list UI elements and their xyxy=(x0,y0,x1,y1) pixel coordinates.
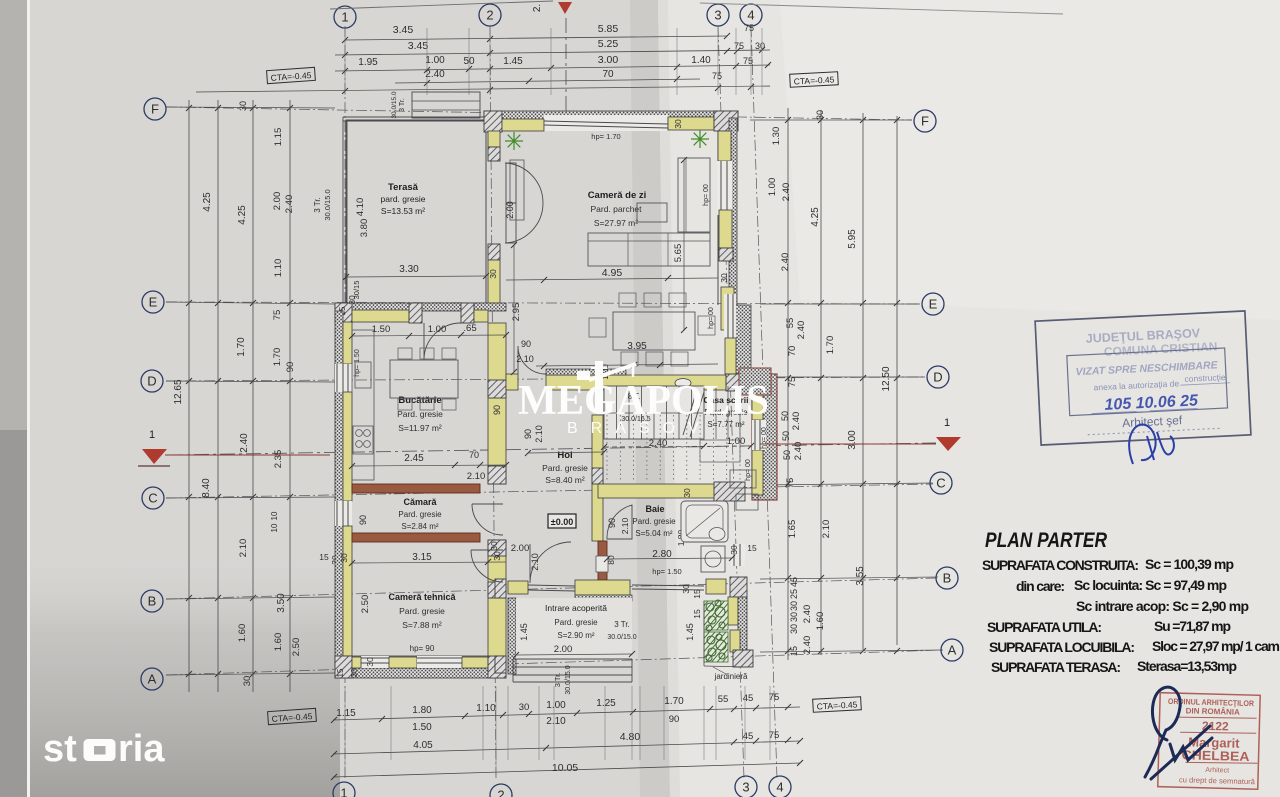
svg-text:1.00: 1.00 xyxy=(767,178,778,197)
svg-text:30: 30 xyxy=(789,612,799,622)
svg-text:4.05: 4.05 xyxy=(413,740,433,751)
svg-text:1.00: 1.00 xyxy=(428,324,447,335)
svg-text:30: 30 xyxy=(349,668,359,678)
svg-text:Sc locuinta: Sc = 97,49 mp: Sc locuinta: Sc = 97,49 mp xyxy=(1074,577,1227,593)
svg-text:E: E xyxy=(149,295,158,310)
svg-text:1.15: 1.15 xyxy=(336,708,356,719)
svg-text:70: 70 xyxy=(602,69,614,80)
svg-text:5.65: 5.65 xyxy=(673,244,684,263)
svg-text:Arhitect şef: Arhitect şef xyxy=(1122,413,1183,430)
svg-text:1: 1 xyxy=(340,786,347,797)
svg-text:2.10: 2.10 xyxy=(821,520,832,539)
svg-text:30.0/15.0: 30.0/15.0 xyxy=(323,189,332,220)
svg-text:2.40: 2.40 xyxy=(284,195,295,214)
svg-text:D: D xyxy=(147,374,156,389)
svg-text:Sc = 100,39 mp: Sc = 100,39 mp xyxy=(1145,556,1234,572)
svg-text:F: F xyxy=(921,114,929,129)
svg-text:construcţie: construcţie xyxy=(1184,372,1226,384)
svg-text:15: 15 xyxy=(747,543,757,553)
svg-text:Pard. parchet: Pard. parchet xyxy=(590,204,642,214)
svg-text:15: 15 xyxy=(692,609,702,619)
svg-text:30: 30 xyxy=(673,119,683,129)
svg-text:15: 15 xyxy=(692,589,702,599)
svg-text:Pard. gresie: Pard. gresie xyxy=(632,517,676,526)
svg-text:1.00: 1.00 xyxy=(425,55,445,66)
svg-text:3: 3 xyxy=(742,780,749,795)
svg-text:12.65: 12.65 xyxy=(173,379,184,404)
svg-text:2.40: 2.40 xyxy=(791,412,802,431)
svg-text:SUPRAFATA UTILA:: SUPRAFATA UTILA: xyxy=(987,619,1102,635)
svg-text:1.40: 1.40 xyxy=(691,55,711,66)
svg-text:30.0/15.0: 30.0/15.0 xyxy=(607,634,636,641)
svg-text:30: 30 xyxy=(729,545,739,555)
svg-text:MEGAPOLIS: MEGAPOLIS xyxy=(518,378,769,424)
svg-text:2.00: 2.00 xyxy=(511,543,530,554)
svg-text:1.70: 1.70 xyxy=(825,336,836,355)
svg-text:3.55: 3.55 xyxy=(855,566,866,586)
svg-text:Su =71,87 mp: Su =71,87 mp xyxy=(1154,618,1231,634)
svg-text:S=27.97 m²: S=27.97 m² xyxy=(594,218,638,228)
svg-text:30.0/15.0: 30.0/15.0 xyxy=(565,665,572,694)
svg-text:B: B xyxy=(148,594,157,609)
svg-text:Pard. gresie: Pard. gresie xyxy=(398,510,442,519)
svg-text:55: 55 xyxy=(785,318,796,329)
svg-text:Arhitect: Arhitect xyxy=(1205,767,1229,775)
svg-text:1: 1 xyxy=(149,429,155,441)
svg-text:75: 75 xyxy=(743,56,753,66)
svg-text:din care:: din care: xyxy=(1016,578,1065,594)
svg-text:2.10: 2.10 xyxy=(238,539,249,558)
svg-text:1.10: 1.10 xyxy=(273,259,284,278)
svg-text:10: 10 xyxy=(270,523,279,532)
svg-text:2.10: 2.10 xyxy=(467,471,486,482)
svg-text:75: 75 xyxy=(272,310,283,321)
svg-text:75: 75 xyxy=(744,23,754,33)
svg-text:3.80: 3.80 xyxy=(359,219,370,238)
svg-text:2.40: 2.40 xyxy=(649,438,668,449)
svg-text:2.10: 2.10 xyxy=(530,553,540,571)
svg-text:90: 90 xyxy=(492,405,502,415)
svg-text:3 Tr.: 3 Tr. xyxy=(614,620,630,629)
svg-text:15: 15 xyxy=(336,668,345,677)
svg-text:30: 30 xyxy=(681,584,691,594)
svg-text:70: 70 xyxy=(787,346,798,357)
svg-text:2: 2 xyxy=(497,788,504,797)
svg-text:pard. gresie: pard. gresie xyxy=(381,194,426,204)
svg-text:1.50: 1.50 xyxy=(412,722,432,733)
svg-text:SUPRAFATA CONSTRUITA:: SUPRAFATA CONSTRUITA: xyxy=(982,557,1139,573)
svg-text:1.80: 1.80 xyxy=(412,705,432,716)
svg-text:3.30: 3.30 xyxy=(399,264,419,275)
svg-text:5.25: 5.25 xyxy=(598,38,619,50)
svg-text:2.35: 2.35 xyxy=(273,450,284,469)
svg-text:S=11.97 m²: S=11.97 m² xyxy=(398,423,442,433)
svg-text:90: 90 xyxy=(358,515,368,525)
svg-text:2.40: 2.40 xyxy=(802,636,813,655)
svg-text:BRASOV: BRASOV xyxy=(567,420,712,437)
svg-text:D: D xyxy=(933,370,942,385)
svg-text:90: 90 xyxy=(285,362,296,373)
svg-text:30: 30 xyxy=(339,553,349,563)
svg-text:1.10: 1.10 xyxy=(476,703,496,714)
svg-text:2.45: 2.45 xyxy=(404,453,424,464)
svg-text:3: 3 xyxy=(714,8,721,23)
svg-text:1.15: 1.15 xyxy=(273,128,284,147)
svg-text:1: 1 xyxy=(944,417,950,429)
svg-text:15: 15 xyxy=(319,552,329,562)
svg-text:75: 75 xyxy=(769,692,780,703)
svg-text:1.30: 1.30 xyxy=(771,127,782,146)
svg-text:55: 55 xyxy=(718,694,729,705)
svg-text:hp= 00: hp= 00 xyxy=(761,427,768,449)
svg-text:1.60: 1.60 xyxy=(273,633,284,652)
svg-text:Pard. gresie: Pard. gresie xyxy=(399,606,445,616)
svg-text:3 Tr.: 3 Tr. xyxy=(553,673,562,688)
svg-text:SUPRAFATA LOCUIBILA:: SUPRAFATA LOCUIBILA: xyxy=(989,639,1135,655)
svg-text:90: 90 xyxy=(521,339,531,349)
svg-text:1.45: 1.45 xyxy=(519,623,529,641)
svg-text:45: 45 xyxy=(789,577,799,587)
svg-text:1.60: 1.60 xyxy=(815,612,826,631)
svg-text:10: 10 xyxy=(270,511,279,520)
svg-text:2.10: 2.10 xyxy=(620,517,630,534)
svg-text:2.10: 2.10 xyxy=(534,425,544,443)
svg-text:Pard. gresie: Pard. gresie xyxy=(542,463,588,473)
svg-text:hp= 1.50: hp= 1.50 xyxy=(652,567,681,576)
svg-text:st: st xyxy=(43,728,77,770)
svg-text:50: 50 xyxy=(780,411,790,421)
svg-text:50: 50 xyxy=(782,450,792,460)
svg-text:1.50: 1.50 xyxy=(372,324,391,335)
svg-text:8.40: 8.40 xyxy=(201,478,212,498)
svg-text:hp= 00: hp= 00 xyxy=(703,184,710,206)
svg-text:30: 30 xyxy=(755,41,765,51)
svg-text:4.95: 4.95 xyxy=(602,267,623,279)
svg-text:C: C xyxy=(148,491,157,506)
svg-text:3.45: 3.45 xyxy=(393,24,414,36)
svg-text:5.95: 5.95 xyxy=(847,229,858,249)
svg-text:3.00: 3.00 xyxy=(847,430,858,450)
svg-text:.65: .65 xyxy=(463,323,476,334)
svg-text:SUPRAFATA TERASA:: SUPRAFATA TERASA: xyxy=(991,659,1121,675)
svg-text:4.10: 4.10 xyxy=(355,198,366,217)
svg-text:1: 1 xyxy=(341,10,348,25)
svg-text:2.40: 2.40 xyxy=(781,183,792,202)
svg-text:Terasă: Terasă xyxy=(388,182,419,193)
svg-text:75: 75 xyxy=(734,41,744,51)
svg-text:4: 4 xyxy=(776,780,783,795)
svg-text:4.25: 4.25 xyxy=(237,205,248,225)
svg-text:90: 90 xyxy=(607,518,617,528)
svg-text:30: 30 xyxy=(789,601,799,611)
svg-text:30: 30 xyxy=(347,295,357,305)
svg-text:3.15: 3.15 xyxy=(412,552,432,563)
svg-text:S=2.90 m²: S=2.90 m² xyxy=(557,631,594,640)
svg-text:2.50: 2.50 xyxy=(360,595,371,614)
svg-text:4.25: 4.25 xyxy=(810,207,821,227)
svg-text:30: 30 xyxy=(682,488,692,498)
svg-text:30: 30 xyxy=(242,676,253,687)
svg-text:1.25: 1.25 xyxy=(596,698,616,709)
svg-text:1.65: 1.65 xyxy=(787,520,798,539)
svg-text:±0.00: ±0.00 xyxy=(551,517,573,527)
svg-text:50: 50 xyxy=(781,431,791,441)
svg-text:2.40: 2.40 xyxy=(239,433,250,453)
svg-text:30: 30 xyxy=(489,541,499,551)
svg-text:1.70: 1.70 xyxy=(236,337,247,357)
svg-text:ria: ria xyxy=(118,728,165,770)
svg-text:2.40: 2.40 xyxy=(425,69,445,80)
svg-text:A: A xyxy=(948,643,957,658)
svg-text:Pard. gresie: Pard. gresie xyxy=(554,618,598,627)
svg-text:Cameră tehnică: Cameră tehnică xyxy=(388,592,456,602)
svg-text:90: 90 xyxy=(669,714,680,725)
svg-text:S=5.04 m²: S=5.04 m² xyxy=(635,529,672,538)
svg-text:30: 30 xyxy=(789,624,799,634)
svg-text:45: 45 xyxy=(743,693,754,704)
svg-text:S=13.53 m²: S=13.53 m² xyxy=(381,206,425,216)
svg-text:90: 90 xyxy=(523,429,533,439)
svg-text:DIN ROMÂNIA: DIN ROMÂNIA xyxy=(1186,706,1241,716)
svg-text:75: 75 xyxy=(769,730,780,741)
svg-text:F: F xyxy=(151,102,159,117)
svg-text:C: C xyxy=(936,476,945,491)
svg-text:2.40: 2.40 xyxy=(793,442,804,461)
svg-text:2.40: 2.40 xyxy=(802,605,813,624)
svg-text:3.45: 3.45 xyxy=(408,40,429,52)
svg-text:4.80: 4.80 xyxy=(620,731,641,743)
svg-text:15: 15 xyxy=(789,646,799,656)
svg-text:A: A xyxy=(148,672,157,687)
svg-text:Intrare acoperită: Intrare acoperită xyxy=(545,603,607,613)
svg-text:CTA=-0.45: CTA=-0.45 xyxy=(816,699,857,711)
svg-text:30: 30 xyxy=(488,269,498,279)
svg-text:CTA=-0.45: CTA=-0.45 xyxy=(793,74,834,86)
svg-text:10.05: 10.05 xyxy=(552,762,578,774)
svg-text:30: 30 xyxy=(492,551,502,561)
svg-text:45: 45 xyxy=(743,731,754,742)
svg-text:2.50: 2.50 xyxy=(291,638,302,657)
svg-text:Cameră de zi: Cameră de zi xyxy=(588,190,647,201)
svg-text:B: B xyxy=(943,571,952,586)
svg-text:2.00: 2.00 xyxy=(554,644,573,655)
svg-text:2.40: 2.40 xyxy=(796,321,807,340)
svg-text:12.50: 12.50 xyxy=(881,366,892,391)
svg-text:Pard. gresie: Pard. gresie xyxy=(397,409,443,419)
svg-text:Sterasa=13,53mp: Sterasa=13,53mp xyxy=(1137,658,1237,674)
svg-text:4: 4 xyxy=(747,8,754,23)
svg-text:3.50: 3.50 xyxy=(276,593,287,613)
svg-text:1.00: 1.00 xyxy=(727,436,746,447)
svg-text:30: 30 xyxy=(238,101,248,111)
svg-text:70: 70 xyxy=(469,450,479,460)
svg-text:3 Tr.: 3 Tr. xyxy=(313,197,322,213)
svg-text:30: 30 xyxy=(365,657,375,667)
svg-text:Cămară: Cămară xyxy=(403,497,437,507)
svg-text:30: 30 xyxy=(519,702,530,713)
svg-text:1.70: 1.70 xyxy=(272,348,283,367)
svg-text:2: 2 xyxy=(486,8,493,23)
svg-text:1.95: 1.95 xyxy=(358,57,378,68)
svg-text:2.40: 2.40 xyxy=(780,253,791,272)
svg-text:Hol: Hol xyxy=(557,450,572,461)
svg-text:1.60: 1.60 xyxy=(237,624,248,643)
svg-text:hp= 00: hp= 00 xyxy=(708,307,715,329)
svg-text:1.45: 1.45 xyxy=(503,56,523,67)
svg-text:30: 30 xyxy=(815,110,825,120)
svg-text:75: 75 xyxy=(712,71,722,81)
svg-text:hp= 90: hp= 90 xyxy=(410,644,435,653)
svg-text:S=7.88 m²: S=7.88 m² xyxy=(402,620,442,630)
svg-text:75: 75 xyxy=(785,478,796,489)
svg-text:2.00: 2.00 xyxy=(272,192,283,211)
svg-text:75: 75 xyxy=(787,377,798,388)
svg-text:2.10: 2.10 xyxy=(516,354,534,364)
svg-text:2.10: 2.10 xyxy=(546,716,566,727)
svg-text:jardinieră: jardinieră xyxy=(714,672,748,681)
svg-text:5.85: 5.85 xyxy=(598,23,619,35)
svg-text:4.25: 4.25 xyxy=(202,192,213,212)
svg-text:S=2.84 m²: S=2.84 m² xyxy=(401,522,438,531)
svg-text:Sloc = 27,97 mp/ 1 cam: Sloc = 27,97 mp/ 1 cam xyxy=(1152,638,1280,654)
svg-text:25: 25 xyxy=(789,589,799,599)
svg-text:2.: 2. xyxy=(532,4,543,12)
svg-text:Baie: Baie xyxy=(645,504,664,514)
svg-text:PLAN PARTER: PLAN PARTER xyxy=(985,529,1108,552)
svg-text:S=8.40 m²: S=8.40 m² xyxy=(545,475,585,485)
svg-text:1.70: 1.70 xyxy=(664,696,684,707)
svg-text:1.45: 1.45 xyxy=(685,623,695,641)
svg-text:30: 30 xyxy=(719,273,729,283)
svg-text:3 Tr.: 3 Tr. xyxy=(399,98,406,112)
svg-text:1.00: 1.00 xyxy=(546,700,566,711)
svg-text:hp= 1.70: hp= 1.70 xyxy=(591,132,620,141)
svg-text:30.0/15.0: 30.0/15.0 xyxy=(391,91,398,118)
svg-text:E: E xyxy=(929,297,938,312)
svg-text:2.95: 2.95 xyxy=(511,303,522,322)
svg-text:3.00: 3.00 xyxy=(598,54,619,66)
svg-text:Sc intrare acop: Sc = 2,90 mp: Sc intrare acop: Sc = 2,90 mp xyxy=(1076,598,1249,614)
